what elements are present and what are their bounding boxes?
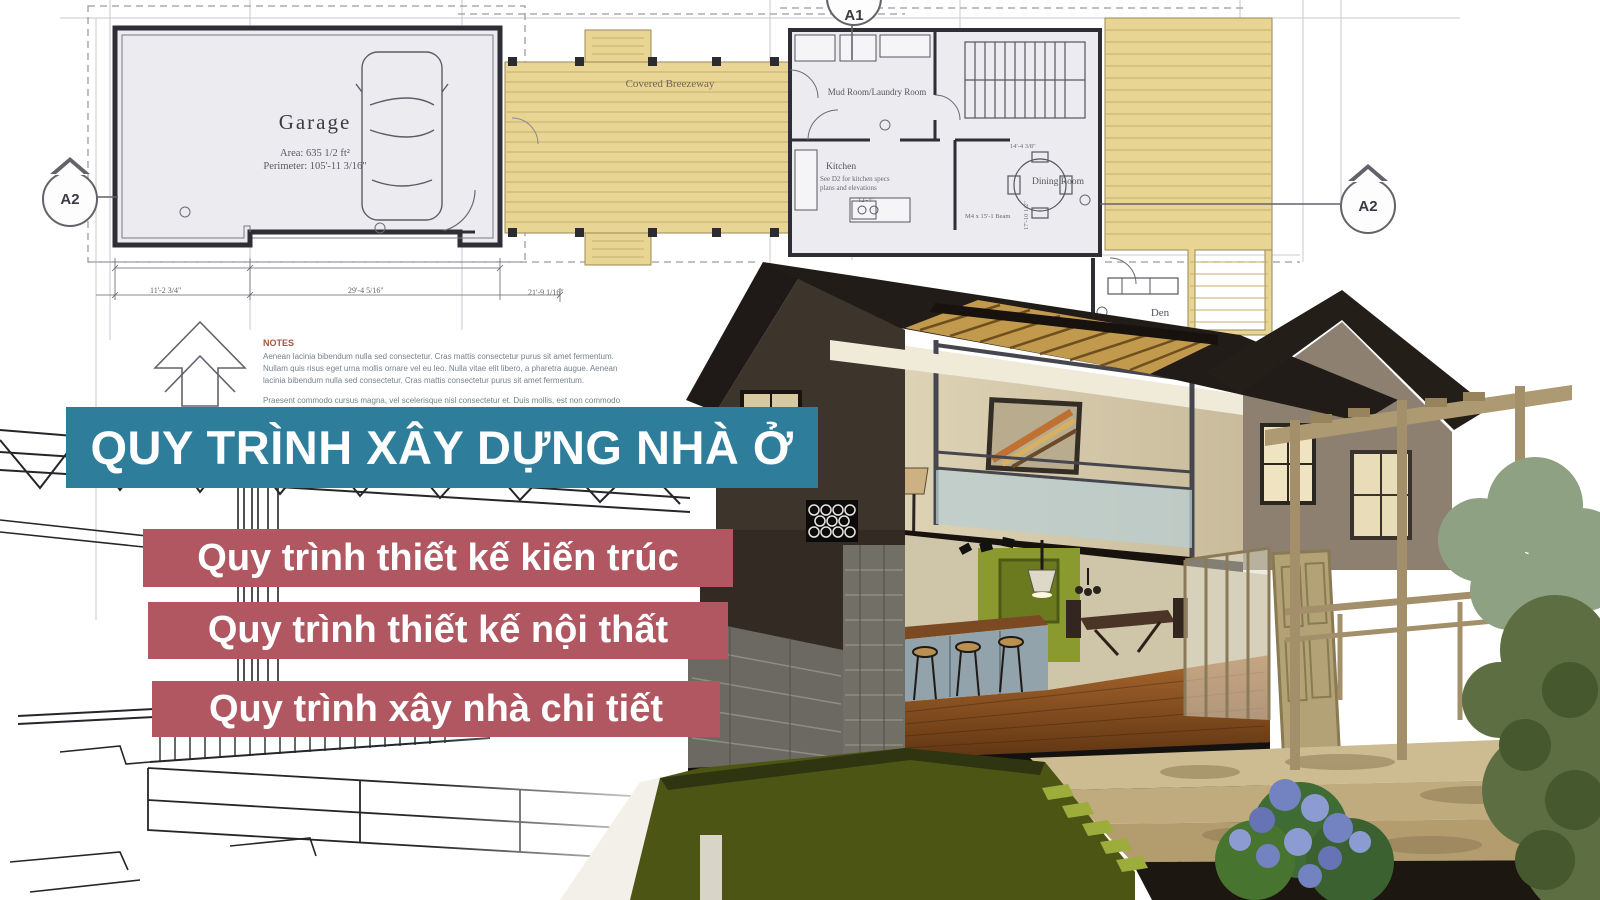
sub-banner-architecture-design: Quy trình thiết kế kiến trúc [143,529,733,587]
dim-garage-right: 29'-4 5/16" [348,286,384,295]
kitchen-bar [893,615,1048,702]
den-label: Den [1140,307,1180,319]
section-marker-triangle-inner [55,162,85,175]
open-door [1273,551,1341,778]
garage-perimeter-label: Perimeter: 105'-11 3/16" [218,161,412,172]
section-marker-a2-right: A2 [1340,178,1396,234]
dim-right-run: 21'-9 1/16" [528,288,564,297]
kitchen-label: Kitchen [826,162,856,172]
dining-room-label: Dining Room [1008,177,1108,187]
notes-heading: NOTES [263,338,635,348]
mudroom-label: Mud Room/Laundry Room [812,87,942,97]
kitchen-note-line1: See D2 for kitchen specs [820,175,890,183]
kitchen-note-line2: plans and elevations [820,184,877,192]
garage-area-label: Area: 635 1/2 ft² [230,148,400,159]
dim-kitchen-width: 12'-4" [858,197,874,204]
beam-label: M4 x 15'-1 Beam [965,213,1010,220]
section-marker-triangle-inner [1353,169,1383,182]
section-marker-a2-right-text: A2 [1358,198,1377,215]
poster-canvas: Garage Area: 635 1/2 ft² Perimeter: 105'… [0,0,1600,900]
section-marker-a1-text: A1 [844,7,863,24]
dim-dining-depth: 17'-10 1/2" [1023,201,1030,230]
garage-room-label: Garage [255,110,375,135]
sub-banner-interior-design: Quy trình thiết kế nội thất [148,602,728,659]
section-marker-a2-left-text: A2 [60,191,79,208]
dim-dining-width: 14'-4 3/8" [1010,143,1036,150]
breezeway-label: Covered Breezeway [590,78,750,90]
title-banner: QUY TRÌNH XÂY DỰNG NHÀ Ở [66,407,818,488]
hex-band [806,500,858,542]
dim-garage-left: 11'-2 3/4" [150,286,181,295]
sub-banner-construction-detail: Quy trình xây nhà chi tiết [152,681,720,737]
notes-paragraph-1: Aenean lacinia bibendum nulla sed consec… [263,351,635,387]
section-marker-a2-left: A2 [42,171,98,227]
